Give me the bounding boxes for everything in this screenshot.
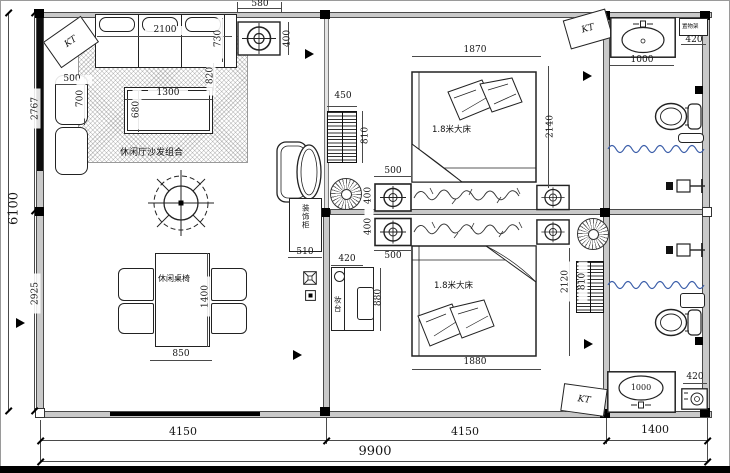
washbasin-icon <box>610 17 676 58</box>
dim-tick <box>704 458 711 465</box>
shelf-label: 置物架 <box>682 24 699 30</box>
bed-top-label: 1.8米大床 <box>432 126 492 135</box>
dimension-line <box>412 56 541 57</box>
nightstand-lamp-icon <box>374 183 412 212</box>
lounge-chair-icon <box>276 140 323 204</box>
dim-shelf-width: 420 <box>680 373 710 382</box>
dimension-line <box>97 36 232 37</box>
dimension-line <box>683 383 707 384</box>
dim-fixture-height: 400 <box>284 19 293 59</box>
ac-marker-label: KT <box>580 22 595 35</box>
ac-marker-box: KT <box>560 383 607 417</box>
dim-nightstand-width: 500 <box>378 167 408 176</box>
nightstand-lamp-icon <box>536 217 570 247</box>
dimension-line <box>40 461 707 462</box>
dim-bed2-length: 2120 <box>562 262 571 302</box>
dim-total-height: 6100 <box>8 179 21 239</box>
arrow-marker-icon <box>16 318 25 328</box>
shower-curtain-wave <box>608 144 704 153</box>
column <box>320 407 330 416</box>
dim-seg-right: 1400 <box>632 424 678 435</box>
radiator <box>327 111 357 163</box>
decor-cabinet-label: 装饰柜 <box>301 204 309 230</box>
column-open <box>702 207 712 217</box>
shelf-washer-icon <box>681 388 708 410</box>
armchair <box>55 127 88 175</box>
arrow-marker-icon <box>583 71 592 81</box>
dimension-line <box>288 257 322 258</box>
sofa-seat <box>96 15 139 67</box>
dim-total-width: 9900 <box>345 445 405 458</box>
column <box>600 208 610 217</box>
decor-cabinet: 装饰柜 <box>289 198 322 252</box>
wall-interior-1-lower <box>323 209 330 411</box>
dim-tick <box>5 407 12 414</box>
dim-bed1-length: 2140 <box>547 107 556 147</box>
arrow-marker-icon <box>584 339 593 349</box>
dim-height-top: 2767 <box>32 89 41 129</box>
column <box>320 10 330 19</box>
dimension-line <box>150 360 212 361</box>
dim-coffee-depth: 680 <box>133 90 142 130</box>
dresser-label: 妆台 <box>333 296 341 313</box>
dimension-line <box>374 176 411 177</box>
dining-chair <box>118 268 154 301</box>
sofa-group-label: 休闲厅沙发组合 <box>120 149 220 159</box>
nightstand-lamp-icon <box>536 183 570 212</box>
dim-height-bottom: 2925 <box>32 274 41 314</box>
dim-sofa-seat: 820 <box>207 56 216 96</box>
sofa-seat <box>139 15 182 67</box>
arrow-marker-icon <box>305 49 314 59</box>
washbasin-icon <box>607 371 676 413</box>
dim-basin-width: 1000 <box>622 56 662 65</box>
dim-dining-length: 1400 <box>202 277 211 317</box>
dining-chair <box>118 303 154 334</box>
dim-sofa-width: 2100 <box>145 26 185 35</box>
floor-symbol-dot-icon <box>305 290 316 301</box>
shower-curtain-wave <box>608 280 704 289</box>
dining-label: 休闲桌椅 <box>158 275 208 284</box>
nightstand-lamp-icon <box>374 217 412 247</box>
toilet-icon <box>654 100 704 133</box>
dining-chair <box>211 303 247 334</box>
dim-cabinet-width: 510 <box>288 248 322 257</box>
dim-dresser-width: 420 <box>330 255 364 264</box>
window-bottom <box>110 412 260 416</box>
dim-fixture-width: 580 <box>240 0 280 9</box>
dim-shelf-width: 420 <box>679 36 709 45</box>
dim-nightstand-depth: 400 <box>365 207 374 247</box>
floor-plan: KT KT KT 休闲厅沙发组合 休闲桌椅 <box>0 0 730 473</box>
page-bottom-edge <box>0 466 730 473</box>
dim-bed1-width: 1870 <box>455 46 495 55</box>
dim-dining-width: 850 <box>161 350 201 359</box>
dim-coffee-width: 1300 <box>148 89 188 98</box>
dim-radiator-width: 450 <box>325 92 361 101</box>
shower-mixer-icon <box>665 242 707 258</box>
dim-radiator-height: 810 <box>362 116 371 156</box>
sofa-armrest <box>225 15 236 67</box>
bed-top <box>410 68 540 212</box>
dimension-line <box>237 2 238 12</box>
dresser-stool <box>357 287 374 320</box>
dim-seg-left: 4150 <box>158 426 208 437</box>
floor-symbol-x-icon <box>303 271 317 285</box>
dimension-line <box>327 106 357 107</box>
ceiling-fixture-icon <box>237 21 281 56</box>
dimension-line <box>610 65 674 66</box>
dim-armchair-width: 500 <box>52 75 92 84</box>
dimension-line <box>281 2 282 12</box>
dim-nightstand-width: 500 <box>378 252 408 261</box>
fan-icon <box>330 178 362 210</box>
ac-marker-label: KT <box>577 394 591 406</box>
toilet-icon <box>654 306 704 339</box>
niche-marker <box>695 86 703 94</box>
arrow-marker-icon <box>293 350 302 360</box>
dining-chair <box>211 268 247 301</box>
dim-armchair-depth: 700 <box>77 79 86 119</box>
dresser: 妆台 <box>331 267 374 331</box>
dresser-mirror-icon <box>334 271 345 282</box>
fan-icon <box>577 218 609 250</box>
toilet-mat <box>678 133 704 143</box>
dim-dresser-length: 880 <box>375 278 384 318</box>
sofa-cushion <box>99 17 135 32</box>
bed-bottom-label: 1.8米大床 <box>434 282 494 291</box>
dim-seg-mid: 4150 <box>440 426 490 437</box>
shower-mixer-icon <box>665 178 707 194</box>
dimension-line <box>412 369 541 370</box>
dim-radiator2-height: 810 <box>579 262 588 302</box>
shelf: 置物架 <box>679 18 708 36</box>
ceiling-lamp-icon <box>150 172 212 234</box>
dim-sofa-depth: 730 <box>215 19 224 59</box>
dimension-line <box>331 265 363 266</box>
basin-value: 1000 <box>623 384 659 392</box>
ac-marker-label: KT <box>63 34 79 49</box>
dim-bed2-width: 1880 <box>455 358 495 367</box>
